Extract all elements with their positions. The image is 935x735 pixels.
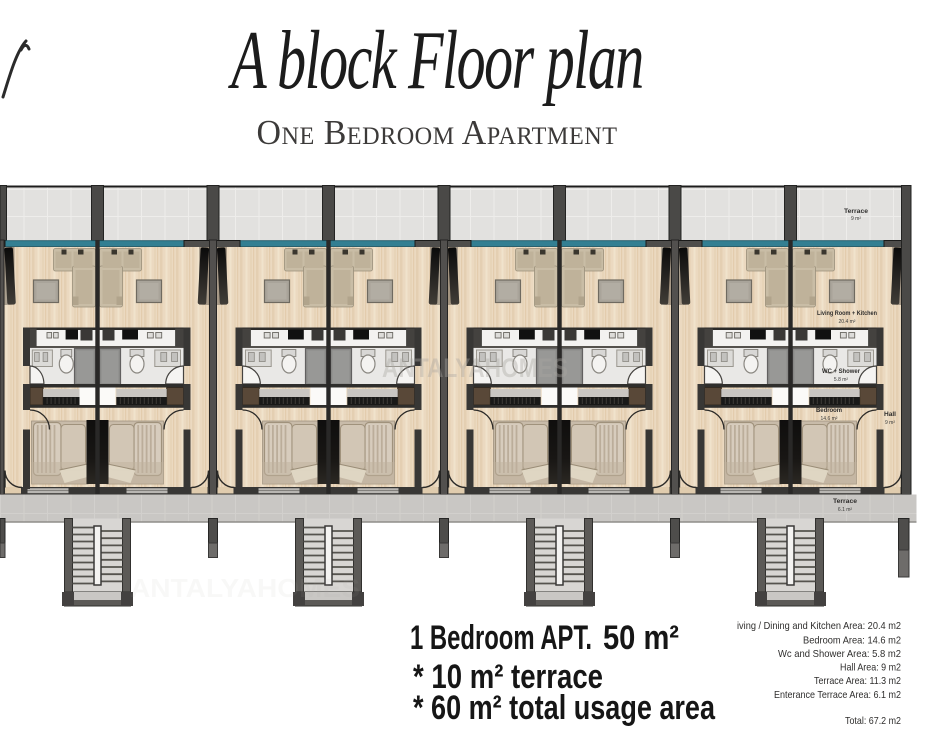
- svg-text:ANTALYAHOMES: ANTALYAHOMES: [130, 573, 360, 603]
- svg-text:Terrace: Terrace: [844, 208, 868, 215]
- svg-text:ANTALYAHOMES: ANTALYAHOMES: [382, 353, 568, 383]
- svg-text:Wc and Shower Area: 5.8 m2: Wc and Shower Area: 5.8 m2: [778, 648, 901, 660]
- svg-text:5.8 m²: 5.8 m²: [834, 377, 849, 383]
- svg-text:One Bedroom Apartment: One Bedroom Apartment: [257, 113, 618, 152]
- svg-text:9 m²: 9 m²: [851, 216, 861, 222]
- svg-text:Enterance Terrace Area: 6.1 m2: Enterance Terrace Area: 6.1 m2: [774, 689, 901, 701]
- svg-text:A block Floor plan: A block Floor plan: [228, 14, 643, 107]
- svg-text:Total: 67.2 m2: Total: 67.2 m2: [845, 715, 901, 727]
- svg-text:1 Bedroom APT.: 1 Bedroom APT.: [410, 619, 592, 657]
- svg-text:Terrace: Terrace: [833, 498, 857, 505]
- svg-text:Hall Area: 9 m2: Hall Area: 9 m2: [840, 662, 901, 674]
- svg-text:Bedroom: Bedroom: [816, 407, 842, 414]
- svg-text:50 m²: 50 m²: [603, 619, 679, 657]
- svg-text:14.6 m²: 14.6 m²: [821, 416, 838, 422]
- svg-text:9 m²: 9 m²: [885, 420, 895, 426]
- svg-text:Terrace Area: 11.3 m2: Terrace Area: 11.3 m2: [814, 675, 901, 687]
- svg-text:6.1 m²: 6.1 m²: [838, 507, 853, 513]
- svg-text:WC + Shower: WC + Shower: [822, 368, 860, 375]
- svg-text:Hall: Hall: [884, 411, 896, 418]
- svg-text:Living Room + Kitchen: Living Room + Kitchen: [817, 310, 877, 317]
- svg-text:* 60 m² total usage area: * 60 m² total usage area: [413, 689, 716, 727]
- svg-text:iving / Dining and Kitchen Are: iving / Dining and Kitchen Area: 20.4 m2: [737, 620, 901, 632]
- svg-text:20.4 m²: 20.4 m²: [839, 319, 856, 325]
- svg-text:Bedroom Area: 14.6 m2: Bedroom Area: 14.6 m2: [803, 634, 901, 646]
